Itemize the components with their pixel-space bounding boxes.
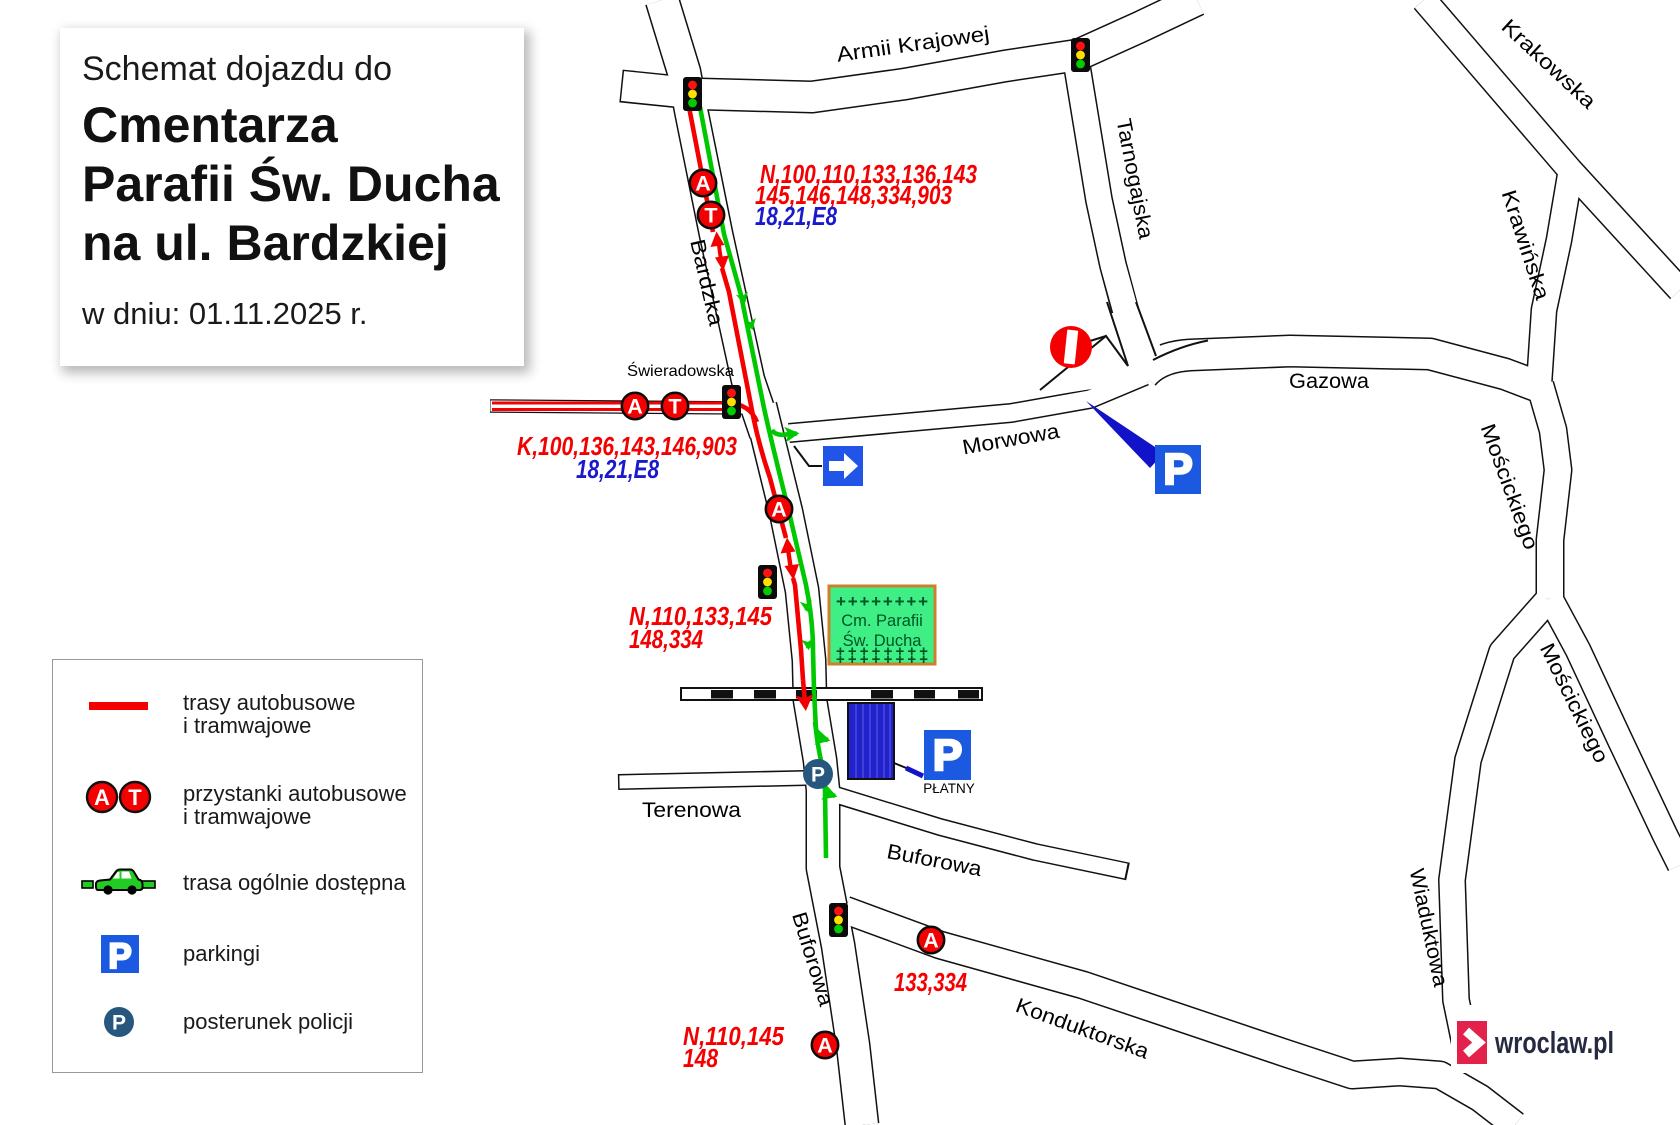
- svg-text:Mościckiego: Mościckiego: [1476, 421, 1543, 553]
- svg-text:18,21,E8: 18,21,E8: [755, 201, 837, 231]
- svg-text:A: A: [94, 785, 110, 810]
- svg-text:przystanki autobusowe: przystanki autobusowe: [183, 781, 407, 806]
- svg-text:P: P: [933, 731, 962, 780]
- svg-text:A: A: [817, 1034, 833, 1058]
- svg-text:133,334: 133,334: [894, 967, 967, 997]
- svg-text:A: A: [923, 929, 939, 953]
- svg-text:A: A: [771, 498, 787, 522]
- svg-text:Buforowa: Buforowa: [885, 840, 984, 881]
- svg-text:P: P: [108, 937, 131, 976]
- svg-text:P: P: [1163, 445, 1192, 494]
- svg-text:trasa ogólnie dostępna: trasa ogólnie dostępna: [183, 870, 406, 895]
- svg-text:P: P: [811, 764, 825, 787]
- svg-text:P: P: [112, 1012, 126, 1035]
- svg-text:PŁATNY: PŁATNY: [923, 781, 975, 796]
- svg-text:Świeradowska: Świeradowska: [627, 361, 734, 380]
- svg-text:Terenowa: Terenowa: [642, 799, 741, 822]
- svg-text:A: A: [627, 395, 643, 419]
- svg-text:Tarnogajska: Tarnogajska: [1111, 117, 1157, 241]
- svg-text:i tramwajowe: i tramwajowe: [183, 713, 311, 738]
- svg-text:T: T: [128, 785, 142, 810]
- svg-text:Gazowa: Gazowa: [1289, 370, 1369, 393]
- svg-text:T: T: [668, 395, 681, 419]
- svg-text:wroclaw.pl: wroclaw.pl: [1494, 1025, 1614, 1060]
- svg-text:++++++++: ++++++++: [836, 592, 928, 611]
- svg-text:T: T: [704, 204, 717, 228]
- svg-text:Cm. Parafii: Cm. Parafii: [841, 612, 923, 630]
- svg-text:A: A: [695, 172, 711, 196]
- svg-text:148,334: 148,334: [629, 624, 703, 654]
- svg-text:i tramwajowe: i tramwajowe: [183, 804, 311, 829]
- svg-text:18,21,E8: 18,21,E8: [576, 454, 659, 484]
- svg-text:posterunek policji: posterunek policji: [183, 1009, 353, 1034]
- svg-text:parkingi: parkingi: [183, 941, 260, 966]
- svg-text:trasy autobusowe: trasy autobusowe: [183, 690, 355, 715]
- svg-text:148: 148: [683, 1043, 718, 1073]
